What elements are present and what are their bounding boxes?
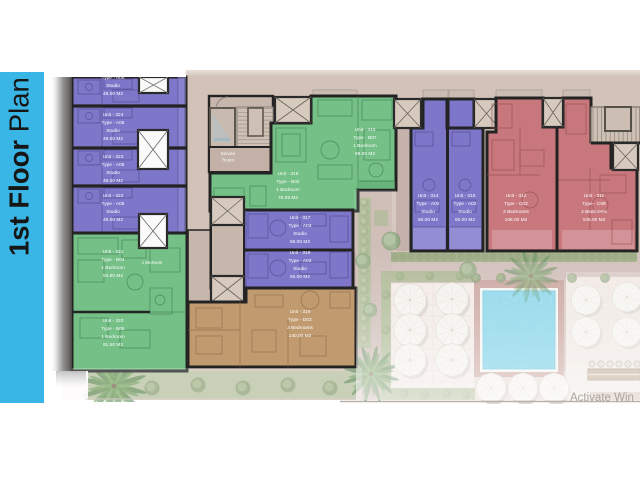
svg-text:ServiceRoom: ServiceRoom <box>221 151 236 162</box>
svg-text:Activate Win: Activate Win <box>570 392 634 404</box>
svg-text:1 Bedroom: 1 Bedroom <box>142 260 163 265</box>
svg-text:1st Floor Plan: 1st Floor Plan <box>4 77 35 256</box>
